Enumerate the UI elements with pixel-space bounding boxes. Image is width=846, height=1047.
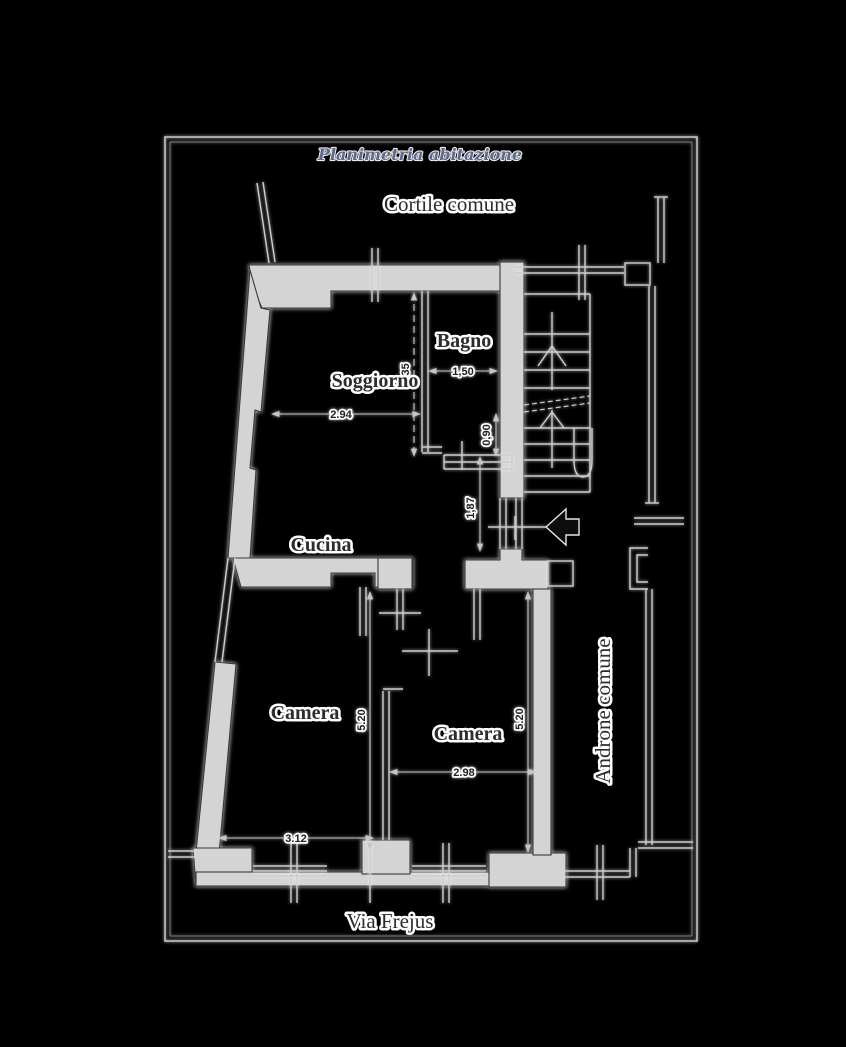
bedroom-left-label: Camera <box>271 702 340 724</box>
street-wall-left-ext <box>168 851 195 857</box>
hall-window-right <box>634 518 684 524</box>
floor-plan-drawing: 2.94 1,50 3,35 0,90 1,87 5.20 3.12 5.20 … <box>0 0 846 1047</box>
wall-entrance-block <box>465 549 548 589</box>
kitchen-door-leaf <box>360 587 366 636</box>
courtyard-label: Cortile comune <box>384 192 514 216</box>
wall-left-diagonal-lower <box>196 662 236 854</box>
hall-bracket <box>630 548 648 589</box>
dim-bath-width: 1,50 <box>452 366 473 378</box>
stair-direction-arrow-upper <box>538 312 566 390</box>
dim-bedroom-right-width: 2.98 <box>453 767 474 779</box>
bedroom-partition <box>379 589 458 840</box>
living-room-label: Soggiorno <box>332 370 419 392</box>
wall-top-band <box>249 265 512 308</box>
dim-hall-passage: 1,87 <box>465 497 477 518</box>
bedroom-right-top-wall <box>474 589 480 640</box>
entrance-arrow-icon <box>546 509 579 545</box>
boundary-diagonal-top <box>257 182 275 263</box>
wall-partition-foot <box>362 840 410 874</box>
page-title: Planimetria abitazione <box>317 145 522 164</box>
kitchen-label: Cucina <box>290 534 351 556</box>
dim-bedroom-left-width: 3.12 <box>285 833 306 845</box>
wall-top-thin <box>514 267 624 273</box>
courtyard-corner-block <box>625 197 668 285</box>
staircase <box>524 294 592 492</box>
street-label: Via Frejus <box>347 909 434 933</box>
wall-bedroom-right-side <box>533 589 551 855</box>
dim-bath-door-width: 0,90 <box>481 424 493 445</box>
hall-wall-upper <box>645 286 659 503</box>
wall-left-diagonal-upper <box>228 270 270 558</box>
stair-break-line <box>524 396 590 412</box>
stair-treads-upper <box>524 334 590 388</box>
floor-plan-page: 2.94 1,50 3,35 0,90 1,87 5.20 3.12 5.20 … <box>0 0 846 1047</box>
corridor-walls <box>500 498 522 549</box>
entrance-hall-label: Androne comune <box>591 638 615 783</box>
bathroom-partition <box>422 291 442 453</box>
wall-partition-block <box>378 558 412 589</box>
bathroom-label: Bagno <box>437 330 491 352</box>
boundary-diagonal-mid <box>215 558 235 662</box>
bedroom-right-label: Camera <box>434 723 503 745</box>
hall-bottom-jog <box>565 842 693 900</box>
dim-living-width: 2.94 <box>330 409 352 421</box>
dim-bedroom-right-height: 5.20 <box>514 708 526 729</box>
dim-bedroom-left-height: 5.20 <box>356 709 368 730</box>
stair-treads-lower <box>524 428 590 492</box>
wall-entrance-foot <box>489 853 566 887</box>
hall-wall-lower <box>646 589 652 845</box>
walls <box>193 262 566 887</box>
